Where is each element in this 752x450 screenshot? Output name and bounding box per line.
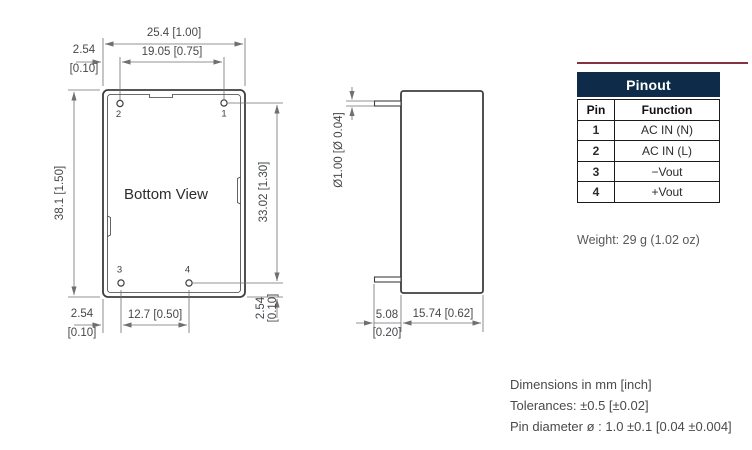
dim-body-width: 25.4 [1.00] (147, 27, 201, 39)
table-row: 4 +Vout (578, 182, 720, 203)
table-row: 3 −Vout (578, 161, 720, 182)
pinout-table-title: Pinout (577, 72, 720, 97)
pinout-table: Pinout Pin Function 1 AC IN (N) 2 AC IN … (577, 72, 720, 203)
pin-function: AC IN (N) (615, 120, 720, 141)
weight-note: Weight: 29 g (1.02 oz) (577, 233, 700, 247)
dim-pin-pitch-horizontal: 19.05 [0.75] (142, 46, 203, 58)
top-notch-mask (149, 94, 173, 96)
datasheet-mechanical-drawing-page: 2 1 3 4 Bottom View (0, 0, 752, 450)
pin-4-hole (186, 280, 192, 286)
dim-edge-offset-right-in: [0.10] (267, 294, 279, 323)
pin-3-label: 3 (117, 265, 122, 276)
dim-pin-diameter: Ø1.00 [Ø 0.04] (333, 112, 345, 187)
side-bottom-pin (375, 277, 402, 282)
bottom-view-drawing: 2 1 3 4 Bottom View (103, 90, 245, 297)
footnote-units: Dimensions in mm [inch] (510, 374, 732, 395)
dim-edge-offset-bottom-in: [0.10] (68, 327, 97, 339)
pin-3-hole (118, 280, 124, 286)
pin-function: +Vout (615, 182, 720, 203)
pin-4-label: 4 (185, 265, 190, 276)
table-row: 1 AC IN (N) (578, 120, 720, 141)
dim-edge-offset-top-in: [0.10] (70, 63, 99, 75)
dim-edge-offset-right-mm: 2.54 (255, 296, 267, 319)
dim-pin-pitch-bottom: 12.7 [0.50] (128, 309, 182, 321)
dim-body-depth: 15.74 [0.62] (413, 308, 474, 320)
drawing-footnotes: Dimensions in mm [inch] Tolerances: ±0.5… (510, 374, 732, 437)
footnote-tolerances: Tolerances: ±0.5 [±0.02] (510, 395, 732, 416)
side-view-drawing (375, 91, 484, 293)
dim-edge-offset-bottom-mm: 2.54 (71, 308, 94, 320)
pin-number: 2 (578, 141, 615, 162)
section-accent-rule (577, 62, 748, 64)
footnote-pin-diameter: Pin diameter ø : 1.0 ±0.1 [0.04 ±0.004] (510, 416, 732, 437)
pin-2-hole (117, 100, 123, 106)
pinout-header-row: Pin Function (578, 100, 720, 121)
pin-number: 4 (578, 182, 615, 203)
pin-1-label: 1 (221, 109, 226, 120)
side-top-pin (375, 101, 402, 106)
pinout-col-pin: Pin (578, 100, 615, 121)
pin-2-label: 2 (116, 109, 121, 120)
pin-function: −Vout (615, 161, 720, 182)
pin-1-hole (221, 100, 227, 106)
pin-number: 1 (578, 120, 615, 141)
dim-pin-length-mm: 5.08 (376, 309, 398, 321)
dim-body-height: 38.1 [1.50] (54, 166, 66, 220)
dim-pin-pitch-vertical: 33.02 [1.30] (258, 162, 270, 223)
side-body-outline (401, 91, 483, 293)
table-row: 2 AC IN (L) (578, 141, 720, 162)
bottom-view-label: Bottom View (124, 186, 208, 203)
pin-number: 3 (578, 161, 615, 182)
dim-edge-offset-top-mm: 2.54 (73, 44, 96, 56)
pinout-col-function: Function (615, 100, 720, 121)
dim-pin-length-in: [0.20] (373, 327, 402, 339)
pin-function: AC IN (L) (615, 141, 720, 162)
